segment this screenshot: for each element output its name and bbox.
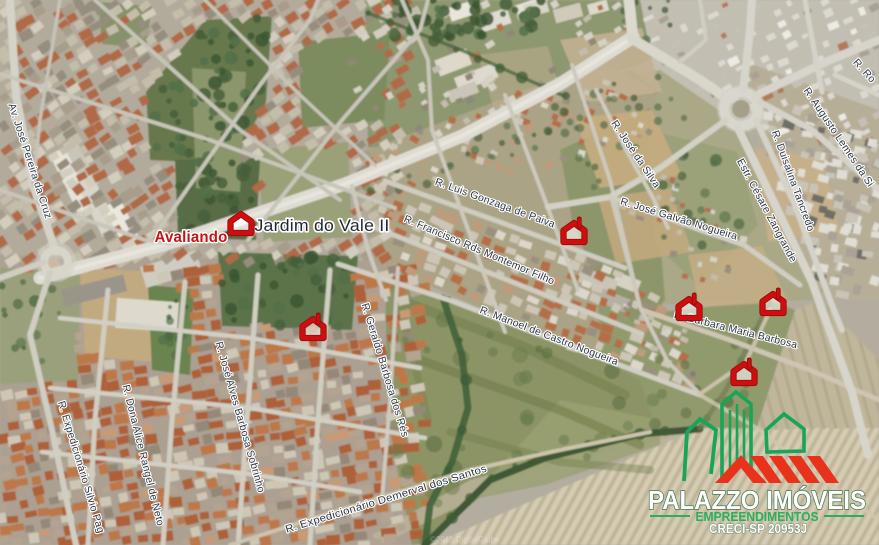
- svg-text:Avaliando: Avaliando: [155, 229, 228, 246]
- svg-text:©2018 DigitalGlobe: ©2018 DigitalGlobe: [430, 535, 500, 544]
- svg-text:CRECI-SP 20953J: CRECI-SP 20953J: [709, 521, 807, 536]
- svg-text:Jardim do Vale II: Jardim do Vale II: [255, 216, 390, 235]
